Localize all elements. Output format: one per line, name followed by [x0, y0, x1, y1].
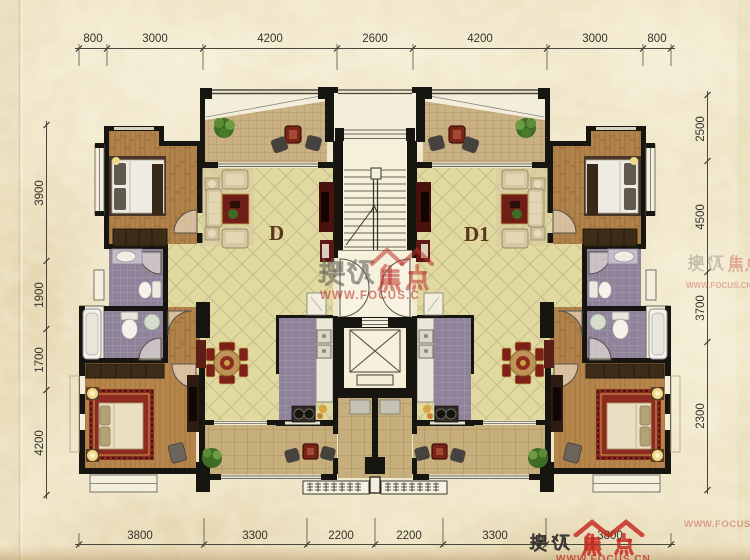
svg-text:3000: 3000 [582, 33, 608, 45]
svg-text:2600: 2600 [362, 33, 388, 45]
svg-text:4500: 4500 [695, 204, 707, 230]
svg-text:800: 800 [647, 33, 666, 45]
svg-text:D1: D1 [464, 222, 490, 246]
svg-text:WWW.FOCUS.CN: WWW.FOCUS.CN [556, 554, 651, 560]
svg-text:D: D [269, 221, 284, 245]
svg-text:2200: 2200 [328, 530, 354, 542]
svg-text:3000: 3000 [142, 33, 168, 45]
svg-text:3300: 3300 [242, 530, 268, 542]
svg-text:800: 800 [83, 33, 102, 45]
svg-text:2200: 2200 [396, 530, 422, 542]
svg-text:WWW.FOCUS.C: WWW.FOCUS.C [320, 290, 420, 302]
svg-text:4200: 4200 [257, 33, 283, 45]
svg-text:3300: 3300 [482, 530, 508, 542]
svg-text:3900: 3900 [34, 180, 46, 206]
svg-text:2300: 2300 [695, 403, 707, 429]
svg-text:3800: 3800 [127, 530, 153, 542]
svg-text:4200: 4200 [467, 33, 493, 45]
svg-text:3700: 3700 [695, 295, 707, 321]
svg-text:1700: 1700 [34, 347, 46, 373]
svg-text:1900: 1900 [34, 282, 46, 308]
svg-text:4200: 4200 [34, 430, 46, 456]
svg-text:WWW.FOCUS.CN: WWW.FOCUS.CN [686, 281, 750, 290]
svg-text:WWW.FOCUS.CN: WWW.FOCUS.CN [684, 519, 750, 530]
svg-text:2500: 2500 [695, 116, 707, 142]
